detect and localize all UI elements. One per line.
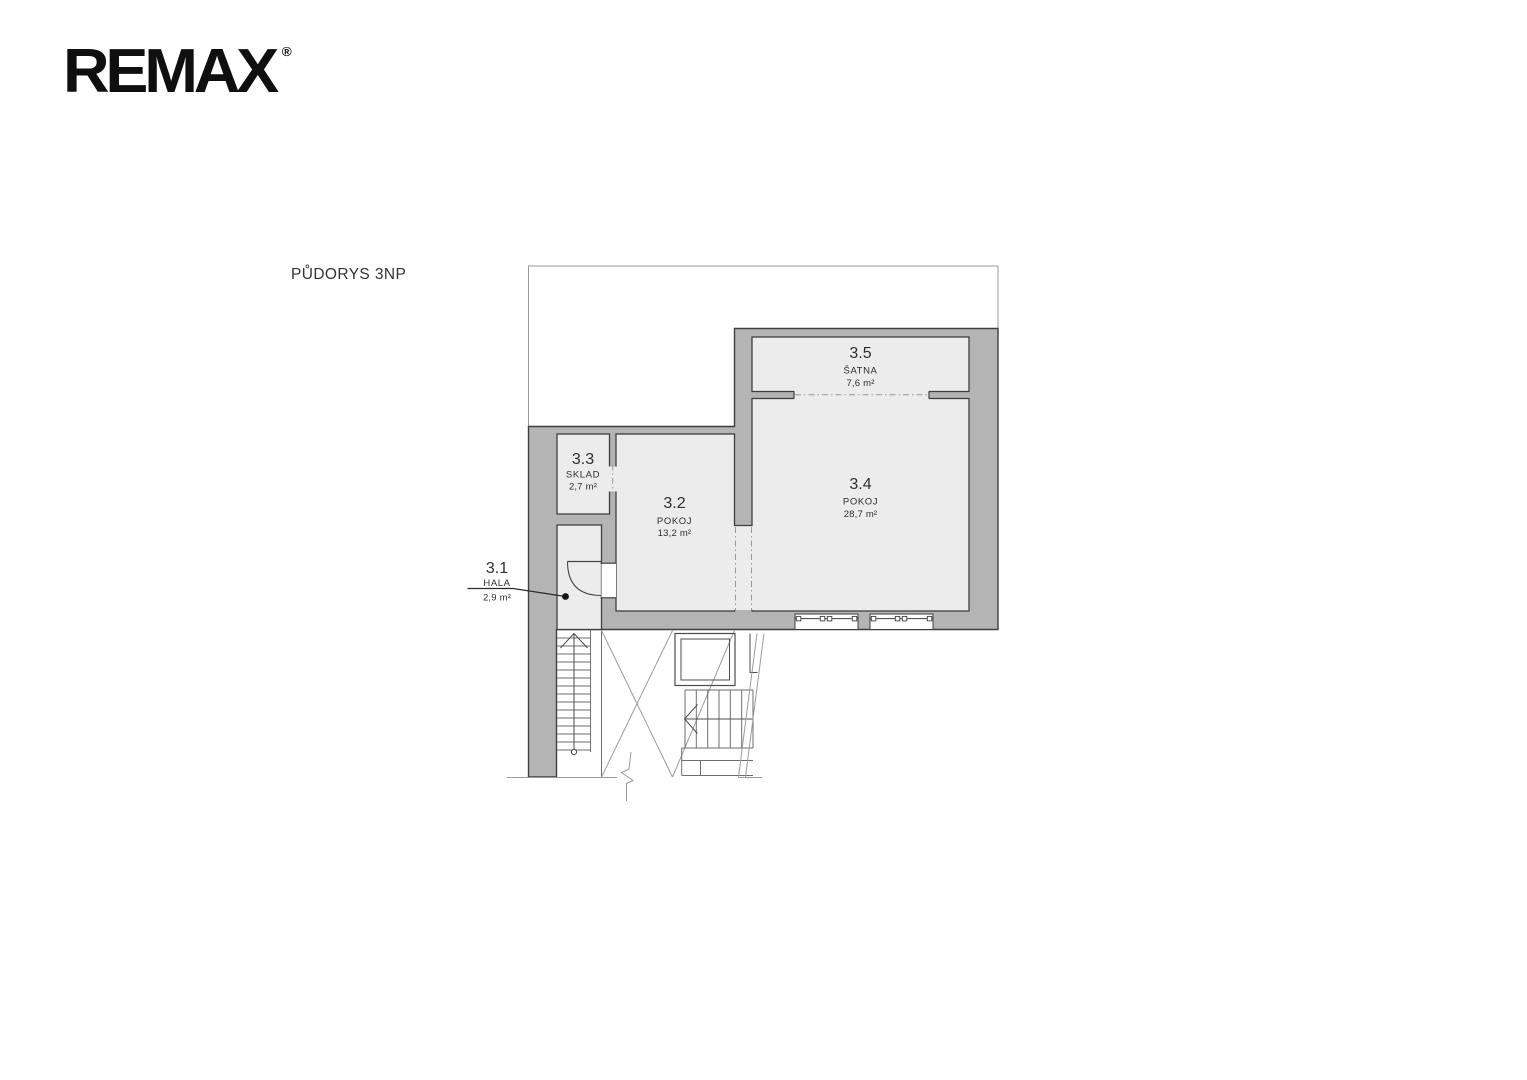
room-3-1-number: 3.1 <box>486 560 508 577</box>
staircase-lower-flight <box>682 690 753 776</box>
walking-line-start <box>571 749 576 754</box>
room-3-4-number: 3.4 <box>849 476 871 493</box>
room-3-5-name: ŠATNA <box>844 366 878 377</box>
plan-title: PŮDORYS 3NP <box>291 266 406 284</box>
remax-logo: REMAX ® <box>63 36 275 107</box>
room-3-2-name: POKOJ <box>657 516 692 527</box>
room-3-1-floor <box>557 525 602 630</box>
room-3-5-number: 3.5 <box>849 345 871 362</box>
remax-logo-text: REMAX <box>63 37 275 106</box>
room-3-3-name: SKLAD <box>566 470 600 481</box>
room-3-5-area: 7,6 m² <box>846 378 874 389</box>
room-3-3-number: 3.3 <box>572 451 594 468</box>
floor-plan-drawing: 3.5 ŠATNA 7,6 m² 3.4 POKOJ 28,7 m² 3.2 P… <box>450 258 1020 818</box>
window-right <box>870 614 933 630</box>
break-zigzag <box>622 752 634 801</box>
break-cross-lines <box>602 631 735 778</box>
opening-3-5-to-3-4 <box>794 390 929 400</box>
window-left <box>795 614 858 630</box>
staircase-upper-flight <box>557 631 591 755</box>
room-3-3-area: 2,7 m² <box>569 482 597 493</box>
room-3-4-area: 28,7 m² <box>844 509 878 520</box>
room-3-1-name: HALA <box>483 578 510 589</box>
room-3-2-number: 3.2 <box>663 495 685 512</box>
leader-dot <box>562 593 569 600</box>
room-3-2-area: 13,2 m² <box>658 528 692 539</box>
room-3-1-area: 2,9 m² <box>483 593 511 604</box>
room-3-4-name: POKOJ <box>843 497 878 508</box>
stair-landing <box>675 634 758 686</box>
passage-3-2-to-3-4 <box>734 526 754 611</box>
page: REMAX ® PŮDORYS 3NP <box>0 0 1527 1080</box>
registered-trademark-symbol: ® <box>282 44 292 59</box>
opening-3-3-to-3-2 <box>609 465 618 494</box>
